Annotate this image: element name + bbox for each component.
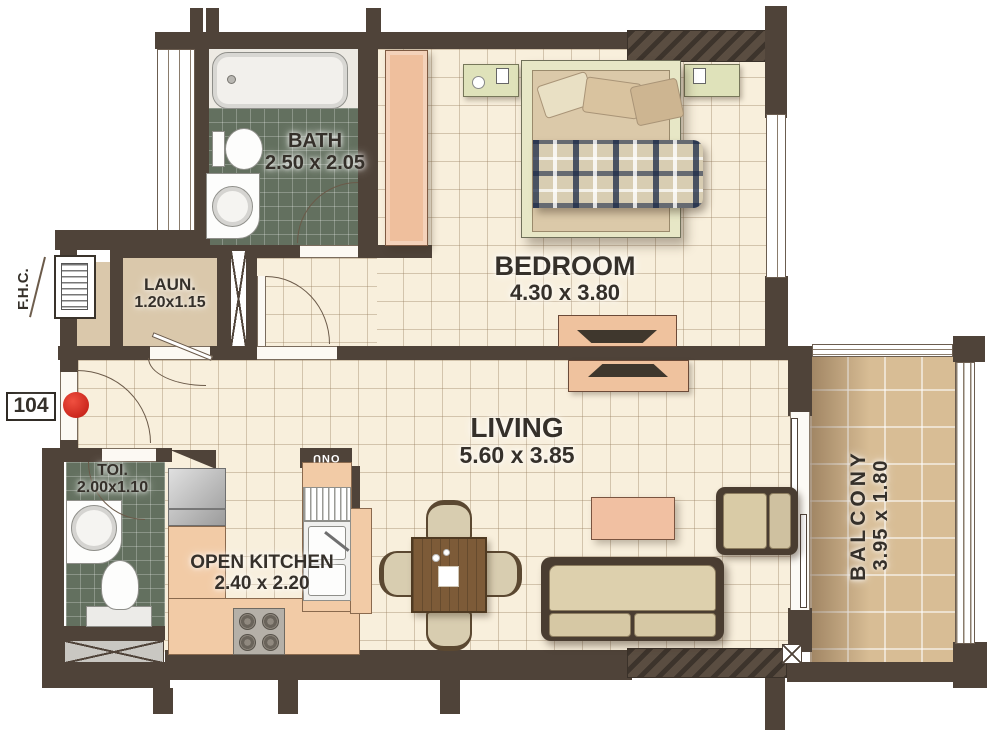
onu-wall-label: ONU <box>300 448 352 468</box>
wall <box>206 8 219 34</box>
floor-plan: ONU 104 BATH <box>0 0 1000 732</box>
sofa-backrest <box>549 565 716 611</box>
sofa-seat-cushion <box>549 613 631 637</box>
room-dims: 2.40 x 2.20 <box>182 574 342 595</box>
duct-shaft <box>782 644 802 664</box>
fhc-label: F.H.C. <box>16 237 32 341</box>
wall <box>42 662 170 688</box>
room-dims: 2.00x1.10 <box>60 479 165 496</box>
wall <box>190 8 203 34</box>
wall <box>247 250 257 348</box>
room-name: LIVING <box>432 413 602 443</box>
room-label-living: LIVING 5.60 x 3.85 <box>432 413 602 468</box>
room-name: OPEN KITCHEN <box>182 553 342 574</box>
wall <box>210 346 257 360</box>
wall-post <box>953 336 985 362</box>
wall <box>60 448 104 462</box>
balcony-railing <box>955 362 975 644</box>
sink-bath <box>212 186 253 227</box>
bedroom-door-leaf <box>257 276 266 346</box>
bath-door-threshold <box>300 245 358 258</box>
sofa-seat-cushion <box>634 613 716 637</box>
table-dish <box>443 549 450 556</box>
wall <box>765 276 788 360</box>
room-dims: 5.60 x 3.85 <box>432 443 602 468</box>
wall <box>155 32 632 49</box>
sliding-door-panel <box>800 514 807 608</box>
room-name: LAUN. <box>116 276 224 294</box>
toilet-tank-bath <box>212 131 225 167</box>
bedroom-window <box>766 114 786 278</box>
unit-number-box: 104 <box>6 392 56 421</box>
dining-chair <box>482 551 522 597</box>
room-name: BALCONY <box>848 400 871 630</box>
toilet-door-threshold <box>102 448 156 462</box>
room-label-laundry: LAUN. 1.20x1.15 <box>116 276 224 312</box>
nightstand-cup <box>472 76 485 89</box>
room-label-balcony: BALCONY 3.95 x 1.80 <box>848 400 922 630</box>
kitchen-counter-return <box>350 508 372 614</box>
room-label-bath: BATH 2.50 x 2.05 <box>240 131 390 174</box>
room-name: BATH <box>240 131 390 153</box>
room-label-kitchen: OPEN KITCHEN 2.40 x 2.20 <box>182 553 342 594</box>
stove-burner <box>262 634 279 651</box>
nightstand-phone <box>496 68 509 84</box>
wall-stub <box>278 680 298 714</box>
onu-text: ONU <box>312 452 339 464</box>
wall-stub <box>153 688 173 714</box>
wardrobe <box>385 50 428 246</box>
wall <box>366 8 381 34</box>
bedroom-door-threshold <box>257 346 337 360</box>
wall <box>337 346 812 360</box>
room-label-bedroom: BEDROOM 4.30 x 3.80 <box>475 252 655 305</box>
stove-burner <box>239 634 256 651</box>
nightstand-phone <box>693 68 706 84</box>
wall <box>110 245 302 258</box>
hatched-wall <box>627 30 787 62</box>
wall-stub <box>765 678 785 730</box>
bed-blanket <box>533 140 703 208</box>
fhc-text: F.H.C. <box>16 237 32 341</box>
entry-marker-dot <box>63 392 89 418</box>
stove <box>233 608 285 655</box>
duct-shaft <box>230 250 247 348</box>
wall <box>788 358 812 416</box>
window <box>157 49 195 232</box>
room-dims: 4.30 x 3.80 <box>475 281 655 305</box>
wall-column <box>765 6 787 118</box>
toilet-bowl <box>101 560 139 610</box>
fridge <box>168 468 226 526</box>
table-dish <box>432 554 440 562</box>
room-dims: 1.20x1.15 <box>116 294 224 311</box>
wall <box>60 346 78 374</box>
wall-column <box>953 642 987 688</box>
wall <box>156 448 172 462</box>
service-shaft <box>64 640 164 664</box>
wall-stub <box>440 680 460 714</box>
balcony-opening <box>812 344 953 357</box>
wall <box>62 626 165 640</box>
stove-burner <box>262 613 279 630</box>
armchair-seat <box>723 493 767 549</box>
coffee-table <box>591 497 675 540</box>
wall <box>787 662 959 682</box>
room-name: TOI. <box>60 462 165 479</box>
unit-number: 104 <box>13 395 48 418</box>
fhc-hose-reel <box>61 263 88 310</box>
room-dims: 2.50 x 2.05 <box>240 153 390 175</box>
stove-burner <box>239 613 256 630</box>
bathtub-drain <box>227 75 236 84</box>
drainboard <box>303 487 351 521</box>
room-label-toilet: TOI. 2.00x1.10 <box>60 462 165 497</box>
dining-chair <box>426 500 472 540</box>
dining-chair <box>426 611 472 651</box>
fridge-divider <box>168 508 226 510</box>
room-dims: 3.95 x 1.80 <box>871 400 893 630</box>
table-napkin <box>438 566 459 587</box>
sink-toilet <box>71 505 117 551</box>
hatched-wall <box>627 648 787 678</box>
room-name: BEDROOM <box>475 252 655 281</box>
armchair-armrest <box>769 493 791 549</box>
